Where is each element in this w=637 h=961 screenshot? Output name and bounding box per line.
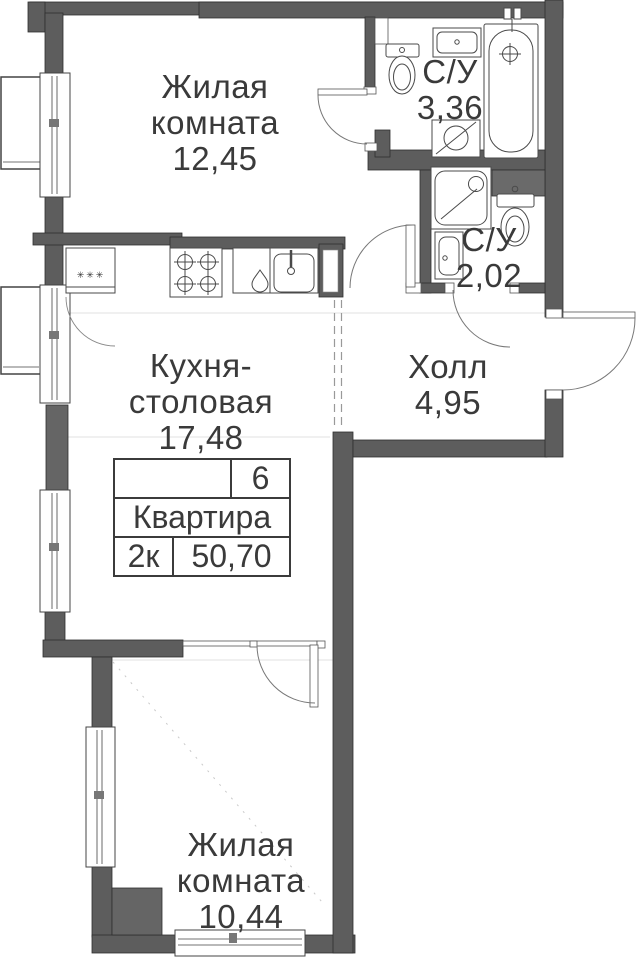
flat-number: 6: [232, 460, 289, 497]
room-name: комната: [177, 863, 305, 899]
fridge-marks: ✳✳✳: [77, 270, 106, 281]
room-name: Жилая: [177, 827, 305, 863]
wall-stub-top-left: [28, 2, 45, 32]
room-label-kitchen: Кухня- столовая 17,48: [129, 348, 273, 456]
wall-right-above-door: [545, 0, 563, 317]
flat-label: Квартира: [115, 499, 289, 536]
dishwasher-fixture: [233, 248, 270, 293]
empty-cell: [115, 460, 232, 497]
room-area: 3,36: [417, 90, 483, 126]
room-name: Кухня-: [129, 348, 273, 384]
bath1-pilaster: [375, 18, 388, 44]
wall-bath2-bottom-right: [519, 283, 545, 293]
table-row: 2к 50,70: [115, 536, 289, 575]
kitchen-fixtures: [66, 248, 318, 346]
room-label-bath-1: С/У 3,36: [417, 54, 483, 126]
floor-plan: Жилая комната 12,45 С/У 3,36 С/У 2,02 Ку…: [0, 0, 637, 961]
wall-right-below-door: [545, 390, 563, 457]
room-area: 17,48: [129, 420, 273, 456]
room-name: С/У: [417, 54, 483, 90]
duct-pier-inner: [323, 250, 338, 292]
room-area: 4,95: [408, 385, 488, 421]
wall-hall-bottom: [353, 440, 547, 457]
room-area: 12,45: [151, 141, 279, 177]
apartment-info-table: 6 Квартира 2к 50,70: [113, 458, 291, 577]
wall-pier-left: [46, 405, 68, 490]
room-label-hall: Холл 4,95: [408, 349, 488, 421]
room-name: Холл: [408, 349, 488, 385]
room-area: 10,44: [177, 899, 305, 935]
shower-fixture: [431, 167, 491, 229]
floor-plan-drawing: [0, 0, 637, 961]
room-label-living-2: Жилая комната 10,44: [177, 827, 305, 935]
room-label-bath-2: С/У 2,02: [456, 222, 522, 294]
bathtub-fixture: [484, 8, 538, 158]
door-bath2: [453, 290, 510, 347]
wall-room2-left-1: [92, 657, 112, 727]
door-living2: [257, 645, 318, 707]
room-area: 2,02: [456, 258, 522, 294]
kitchen-sink-fixture: [270, 248, 318, 293]
stove-fixture: [170, 248, 222, 297]
wall-bath2-left: [420, 170, 431, 293]
window-living2-left: [86, 727, 115, 867]
balcony-basket-1: [1, 77, 42, 169]
wall-left-1: [45, 13, 63, 73]
room-name: комната: [151, 105, 279, 141]
wall-room2-top: [43, 640, 183, 657]
room-name: столовая: [129, 384, 273, 420]
window-kitchen-1: [40, 285, 70, 403]
door-vestibule: [350, 225, 415, 288]
total-area: 50,70: [174, 538, 289, 575]
door-entrance: [563, 312, 635, 390]
table-row: 6: [115, 460, 289, 497]
window-kitchen-2: [40, 490, 70, 612]
toilet-fixture-1: [386, 44, 419, 94]
rooms-count: 2к: [115, 538, 174, 575]
door-living1: [318, 89, 367, 144]
room-name: Жилая: [151, 69, 279, 105]
wall-right-inner: [333, 432, 353, 953]
room-name: С/У: [456, 222, 522, 258]
fridge-fixture: [66, 248, 115, 346]
wall-living1-bottom-left: [33, 233, 182, 245]
wall-bath1-left: [365, 17, 375, 87]
balcony-basket-2: [1, 287, 41, 374]
table-row: Квартира: [115, 497, 289, 536]
window-living1: [40, 73, 70, 197]
column: [112, 888, 162, 935]
vent-shaft: [492, 170, 545, 196]
wall-bath2-bottom-left: [420, 283, 445, 293]
room-label-living-1: Жилая комната 12,45: [151, 69, 279, 177]
wall-room2-left-2: [92, 867, 112, 937]
